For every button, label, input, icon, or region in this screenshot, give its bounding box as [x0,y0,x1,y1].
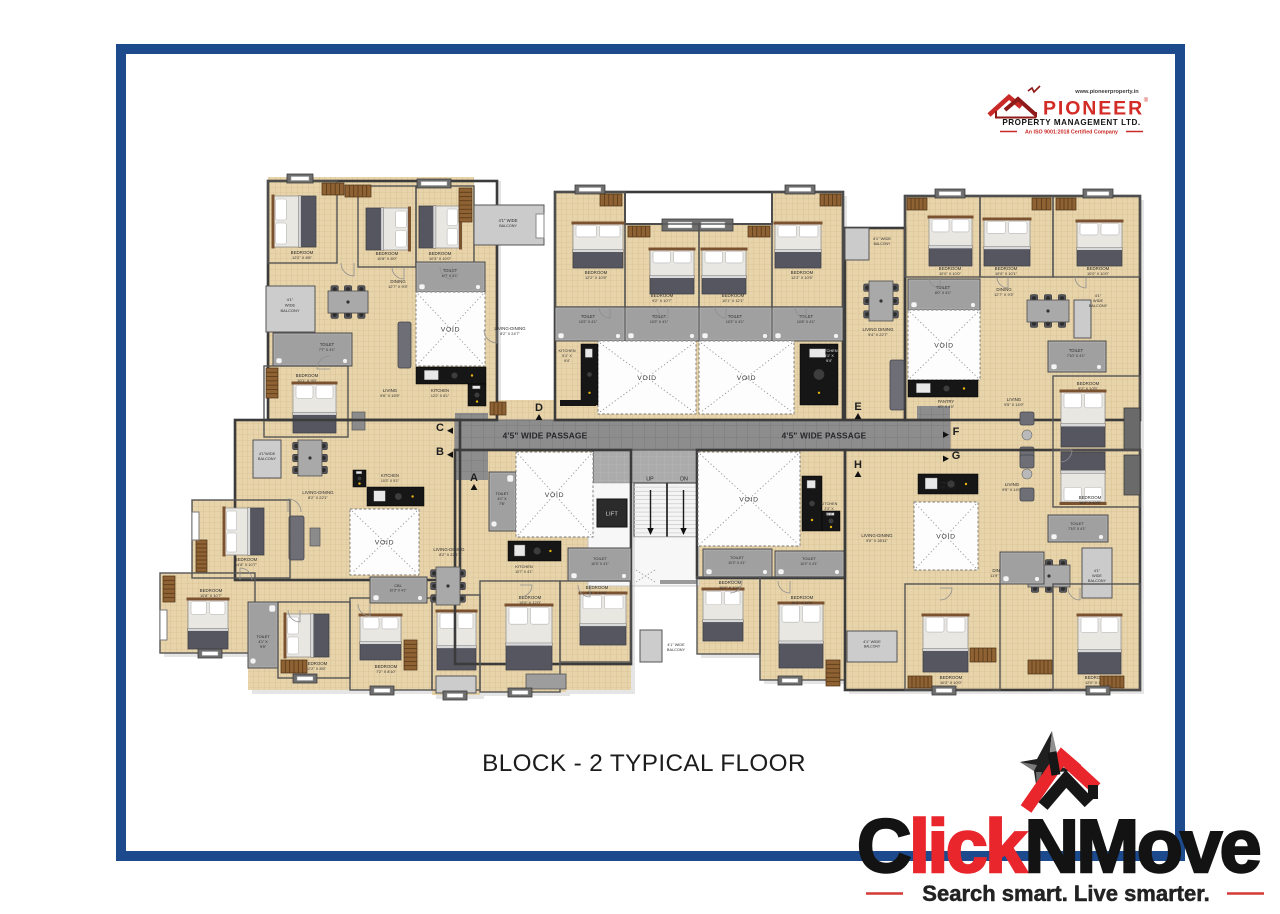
svg-text:B: B [436,446,444,458]
svg-text:10'3" X 10'0": 10'3" X 10'0" [429,256,452,261]
svg-text:KITCHEN: KITCHEN [515,564,533,569]
svg-text:PANTRY: PANTRY [940,480,956,485]
svg-text:PROPERTY MANAGEMENT LTD.: PROPERTY MANAGEMENT LTD. [1002,118,1140,127]
svg-text:10'1" X 12'1": 10'1" X 12'1" [722,298,745,303]
svg-text:TOILET: TOILET [581,314,596,319]
svg-text:9'2" X 10'5": 9'2" X 10'5" [1078,386,1098,391]
svg-text:10'2" X 10'5": 10'2" X 10'5" [1079,500,1102,505]
svg-text:VOID: VOID [737,375,756,382]
svg-text:14'8" X 10'7": 14'8" X 10'7" [235,562,258,567]
svg-text:WIDE: WIDE [285,303,296,308]
svg-text:LIFT: LIFT [606,512,619,518]
svg-text:ClickNMove: ClickNMove [857,804,1260,888]
svg-text:F: F [953,426,960,438]
svg-text:2'3" X: 2'3" X [824,507,834,511]
svg-text:®: ® [1144,97,1149,104]
svg-text:4'1" WIDE: 4'1" WIDE [873,236,892,241]
svg-text:10'3" X 5'1": 10'3" X 5'1" [381,479,400,483]
svg-text:An ISO 9001:2018 Certified Com: An ISO 9001:2018 Certified Company [1025,130,1118,136]
svg-text:TOILET: TOILET [256,635,270,639]
svg-text:PIONEER: PIONEER [1043,98,1144,120]
svg-text:TOILET: TOILET [1069,348,1084,353]
svg-text:9'4": 9'4" [564,359,571,363]
svg-text:10'2" X 4'1": 10'2" X 4'1" [650,320,669,324]
svg-text:7'2" X 8'10": 7'2" X 8'10" [376,669,396,674]
svg-text:BALCONY: BALCONY [874,242,891,246]
svg-text:4'1" WIDE: 4'1" WIDE [863,639,881,644]
svg-text:VOID: VOID [739,497,758,504]
svg-text:4'1" WIDE: 4'1" WIDE [667,643,685,647]
svg-text:10'1" X 9'9": 10'1" X 9'9" [297,378,317,383]
svg-text:12'2" X 10'5": 12'2" X 10'5" [791,275,814,280]
svg-text:10'0" X 10'1": 10'0" X 10'1" [995,271,1018,276]
svg-text:4'1" WIDE: 4'1" WIDE [498,218,517,223]
svg-text:BALCONY: BALCONY [258,457,277,461]
svg-text:10'7" X 4'1": 10'7" X 4'1" [515,570,534,574]
svg-text:10'8" X 10'7": 10'8" X 10'7" [200,593,223,598]
svg-text:9'0" X 28'11": 9'0" X 28'11" [866,538,888,543]
svg-text:9'4": 9'4" [826,359,833,363]
svg-text:DN: DN [680,477,688,483]
svg-text:VOID: VOID [637,375,656,382]
svg-text:BALCONY: BALCONY [667,648,686,652]
svg-text:VOID: VOID [375,540,394,547]
svg-text:10'2" X 4'1": 10'2" X 4'1" [726,320,745,324]
svg-text:4'1" X: 4'1" X [258,640,268,644]
svg-text:12'7" X 9'3": 12'7" X 9'3" [994,292,1014,297]
svg-text:WIDE: WIDE [1092,574,1102,578]
svg-text:TOILET: TOILET [320,342,335,347]
svg-text:10'2" X 4'1": 10'2" X 4'1" [800,562,819,566]
svg-text:8'0" X 4'0": 8'0" X 4'0" [938,405,955,409]
svg-text:12'2" X 10'5": 12'2" X 10'5" [585,275,608,280]
svg-text:7'7" X 4'1": 7'7" X 4'1" [319,348,336,352]
svg-text:5'1" X: 5'1" X [562,354,572,358]
svg-text:E: E [854,401,861,413]
svg-text:12'7" X 9'3": 12'7" X 9'3" [388,284,408,289]
svg-text:9'8" X 4'0": 9'8" X 4'0" [940,486,956,490]
svg-text:Search smart. Live smarter.: Search smart. Live smarter. [922,881,1209,906]
svg-text:KITCHEN: KITCHEN [820,348,837,353]
svg-text:9'6" X 15'9": 9'6" X 15'9" [380,393,400,398]
svg-text:9'2" X 10'7": 9'2" X 10'7" [652,298,672,303]
svg-text:9'4" X 22'7": 9'4" X 22'7" [868,332,888,337]
svg-text:BALCONY: BALCONY [864,645,881,649]
svg-text:www.pioneerproperty.in: www.pioneerproperty.in [1074,89,1139,95]
svg-text:VOID: VOID [936,534,955,541]
svg-text:7'10" X 4'1": 7'10" X 4'1" [1068,527,1087,531]
svg-text:KITCHEN: KITCHEN [821,502,838,506]
svg-text:9'9": 9'9" [260,645,267,649]
svg-text:10'8" X 4'1": 10'8" X 4'1" [797,320,816,324]
svg-text:VOID: VOID [934,343,953,350]
svg-text:H: H [854,459,862,471]
svg-text:TOILET: TOILET [443,268,458,273]
svg-text:KITCHEN: KITCHEN [381,473,399,478]
svg-text:10'2" X 14'9": 10'2" X 14'9" [791,600,814,605]
svg-text:8'0" X 4'1": 8'0" X 4'1" [935,291,952,295]
svg-text:8'2" X 22'1": 8'2" X 22'1" [439,552,459,557]
svg-text:4'1" X: 4'1" X [497,497,507,501]
svg-text:4'1": 4'1" [287,297,294,302]
svg-text:7'10" X 4'1": 7'10" X 4'1" [1067,354,1086,358]
svg-text:10'3" X 4'1": 10'3" X 4'1" [389,589,407,593]
svg-text:BALCONY: BALCONY [1088,579,1107,583]
svg-text:12'2" X 8'6": 12'2" X 8'6" [292,255,312,260]
svg-text:10'0": 10'0" [825,512,834,516]
svg-text:C: C [436,422,444,434]
svg-text:BLOCK - 2 TYPICAL FLOOR: BLOCK - 2 TYPICAL FLOOR [482,750,806,777]
svg-text:10'0" X 10'0": 10'0" X 10'0" [1087,271,1110,276]
svg-text:5'1" X: 5'1" X [824,354,834,358]
svg-text:7'6": 7'6" [499,502,506,506]
svg-text:10'0" X 12'0": 10'0" X 12'0" [519,600,542,605]
svg-text:TOILET: TOILET [593,556,607,561]
svg-text:9'5" X 14'9": 9'5" X 14'9" [1002,487,1022,492]
svg-text:UP: UP [646,477,654,483]
svg-text:D: D [535,402,543,414]
svg-text:BALCONY: BALCONY [1089,303,1108,308]
svg-text:TOILET: TOILET [652,314,667,319]
svg-text:KITCHEN: KITCHEN [558,348,575,353]
svg-text:10'3" X 4'1": 10'3" X 4'1" [728,561,747,565]
svg-text:12'2" X 8'6": 12'2" X 8'6" [306,666,326,671]
svg-text:CBL: CBL [394,583,402,588]
svg-text:A: A [470,472,478,484]
svg-text:4'5" WIDE PASSAGE: 4'5" WIDE PASSAGE [782,431,867,441]
svg-text:4'5" WIDE PASSAGE: 4'5" WIDE PASSAGE [503,431,588,441]
svg-text:TOILET: TOILET [728,314,743,319]
svg-text:VOID: VOID [545,492,564,499]
svg-text:BALCONY: BALCONY [499,224,517,228]
svg-text:TOILET: TOILET [730,555,744,560]
svg-text:KITCHEN: KITCHEN [431,388,449,393]
svg-text:10'2" X 4'1": 10'2" X 4'1" [579,320,598,324]
svg-text:4'1"WIDE: 4'1"WIDE [259,452,276,456]
svg-text:10'0" X 10'0": 10'0" X 10'0" [939,271,962,276]
svg-text:12'2" X 8'1": 12'2" X 8'1" [431,394,450,398]
svg-text:PANTRY: PANTRY [938,399,954,404]
svg-text:10'3" X 4'1": 10'3" X 4'1" [591,562,610,566]
svg-text:10'2" X 10'0": 10'2" X 10'0" [940,680,963,685]
svg-text:9'5" X 14'9": 9'5" X 14'9" [1004,402,1024,407]
svg-text:VOID: VOID [441,327,460,334]
svg-text:TOILET: TOILET [496,492,510,496]
svg-text:10'8" X 8'0": 10'8" X 8'0" [377,256,397,261]
svg-text:8'2" X 24'7": 8'2" X 24'7" [500,331,520,336]
svg-text:BALCONY: BALCONY [280,308,299,313]
svg-text:TOILET: TOILET [1070,521,1084,526]
svg-text:G: G [952,450,961,462]
svg-text:TOILET: TOILET [802,556,816,561]
svg-text:8'2" X 22'1": 8'2" X 22'1" [308,495,328,500]
svg-text:4'1": 4'1" [1094,569,1101,573]
